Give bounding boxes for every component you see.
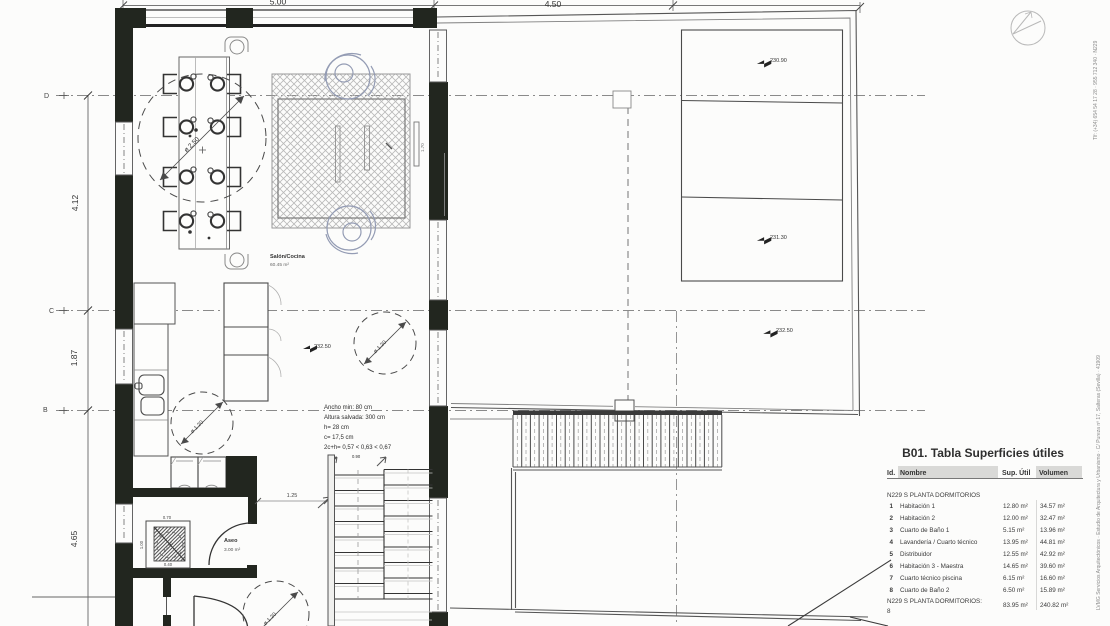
svg-text:Tlf: (+34) 654 54 17 28 · 955: Tlf: (+34) 654 54 17 28 · 955 712 340 · … <box>1093 40 1099 140</box>
svg-text:c= 17,5 cm: c= 17,5 cm <box>324 435 354 441</box>
svg-text:13.95 m²: 13.95 m² <box>1003 539 1028 546</box>
svg-text:Habitación 3 - Maestra: Habitación 3 - Maestra <box>900 563 964 570</box>
svg-text:Altura salvada: 300 cm: Altura salvada: 300 cm <box>324 415 385 421</box>
svg-text:13.96 m²: 13.96 m² <box>1040 527 1065 534</box>
svg-text:42.92 m²: 42.92 m² <box>1040 551 1065 558</box>
svg-text:83.95 m²: 83.95 m² <box>1003 602 1028 609</box>
svg-text:4.65: 4.65 <box>69 530 79 547</box>
svg-text:1: 1 <box>889 503 893 510</box>
svg-text:2c+h= 0,57 < 0,63 < 0,67: 2c+h= 0,57 < 0,63 < 0,67 <box>324 445 392 451</box>
svg-text:1.25: 1.25 <box>287 493 298 499</box>
svg-text:B01. Tabla Superficies útiles: B01. Tabla Superficies útiles <box>902 446 1064 460</box>
svg-text:15.89 m²: 15.89 m² <box>1040 587 1065 594</box>
svg-text:12.80 m²: 12.80 m² <box>1003 503 1028 510</box>
svg-text:6.15 m²: 6.15 m² <box>1003 575 1024 582</box>
svg-text:D: D <box>44 93 49 100</box>
svg-text:1.00: 1.00 <box>139 540 144 549</box>
svg-text:h= 28 cm: h= 28 cm <box>324 425 349 431</box>
svg-text:16.60 m²: 16.60 m² <box>1040 575 1065 582</box>
svg-text:Lavandería / Cuarto técnico: Lavandería / Cuarto técnico <box>900 539 978 546</box>
svg-text:Salón/Cocina: Salón/Cocina <box>270 254 306 260</box>
svg-text:232.50: 232.50 <box>314 344 331 350</box>
svg-text:2: 2 <box>889 515 893 522</box>
svg-text:Id.: Id. <box>887 470 895 477</box>
svg-text:232.50: 232.50 <box>776 328 793 334</box>
svg-text:3: 3 <box>889 527 893 534</box>
svg-text:0.40: 0.40 <box>164 562 173 567</box>
svg-text:Cuarto técnico piscina: Cuarto técnico piscina <box>900 575 962 582</box>
svg-text:Nombre: Nombre <box>900 470 927 477</box>
svg-text:C: C <box>49 308 54 315</box>
svg-text:4: 4 <box>889 539 893 546</box>
svg-text:7: 7 <box>889 575 893 582</box>
svg-text:5.00: 5.00 <box>270 0 287 7</box>
svg-text:39.60 m²: 39.60 m² <box>1040 563 1065 570</box>
svg-text:12.55 m²: 12.55 m² <box>1003 551 1028 558</box>
svg-text:LVMG Servicios Arquitectónicos: LVMG Servicios Arquitectónicos · Estudio… <box>1096 355 1102 610</box>
svg-text:32.47 m²: 32.47 m² <box>1040 515 1065 522</box>
svg-text:6.50 m²: 6.50 m² <box>1003 587 1024 594</box>
svg-text:12.00 m²: 12.00 m² <box>1003 515 1028 522</box>
svg-text:N229 S PLANTA DORMITORIOS:: N229 S PLANTA DORMITORIOS: <box>887 598 982 605</box>
svg-text:5: 5 <box>889 551 893 558</box>
svg-text:B: B <box>43 407 48 414</box>
svg-text:8: 8 <box>889 587 893 594</box>
svg-text:44.81 m²: 44.81 m² <box>1040 539 1065 546</box>
svg-text:3.00 m²: 3.00 m² <box>224 547 241 553</box>
svg-text:Volumen: Volumen <box>1039 470 1068 477</box>
svg-text:N229 S PLANTA DORMITORIOS: N229 S PLANTA DORMITORIOS <box>887 492 980 499</box>
svg-text:240.82 m²: 240.82 m² <box>1040 602 1068 609</box>
svg-text:8: 8 <box>887 608 891 615</box>
svg-text:Ancho min: 80 cm: Ancho min: 80 cm <box>324 405 372 411</box>
svg-text:Habitación 2: Habitación 2 <box>900 515 936 522</box>
svg-text:34.57 m²: 34.57 m² <box>1040 503 1065 510</box>
svg-text:Sup. Útil: Sup. Útil <box>1002 468 1030 477</box>
svg-text:6: 6 <box>889 563 893 570</box>
svg-text:1.87: 1.87 <box>69 349 79 366</box>
svg-text:0.70: 0.70 <box>163 515 172 520</box>
svg-text:Habitación 1: Habitación 1 <box>900 503 936 510</box>
svg-text:4.50: 4.50 <box>545 0 562 9</box>
svg-text:0.90: 0.90 <box>352 454 361 459</box>
svg-text:Cuarto de Baño 1: Cuarto de Baño 1 <box>900 527 950 534</box>
svg-text:60.45 m²: 60.45 m² <box>270 262 289 268</box>
svg-text:1.70: 1.70 <box>420 143 425 152</box>
svg-text:Cuarto de Baño 2: Cuarto de Baño 2 <box>900 587 950 594</box>
svg-text:Aseo: Aseo <box>224 538 238 544</box>
svg-text:231.30: 231.30 <box>770 235 787 241</box>
svg-text:4.12: 4.12 <box>70 194 80 211</box>
svg-text:14.65 m²: 14.65 m² <box>1003 563 1028 570</box>
svg-text:230.90: 230.90 <box>770 58 787 64</box>
svg-text:5.15 m²: 5.15 m² <box>1003 527 1024 534</box>
svg-text:Distribuidor: Distribuidor <box>900 551 932 558</box>
